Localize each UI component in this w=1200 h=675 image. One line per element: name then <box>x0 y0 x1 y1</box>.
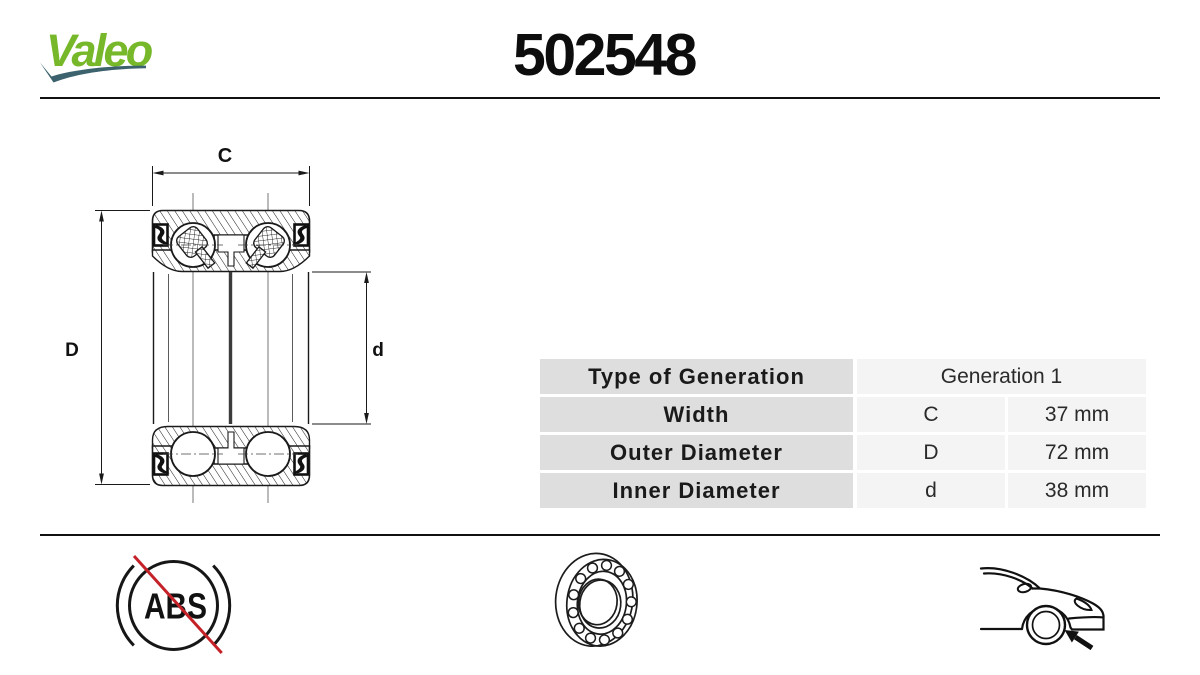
svg-text:C: C <box>218 145 232 167</box>
svg-text:d: d <box>372 340 384 361</box>
svg-text:D: D <box>65 340 79 361</box>
svg-text:ABS: ABS <box>144 586 207 627</box>
